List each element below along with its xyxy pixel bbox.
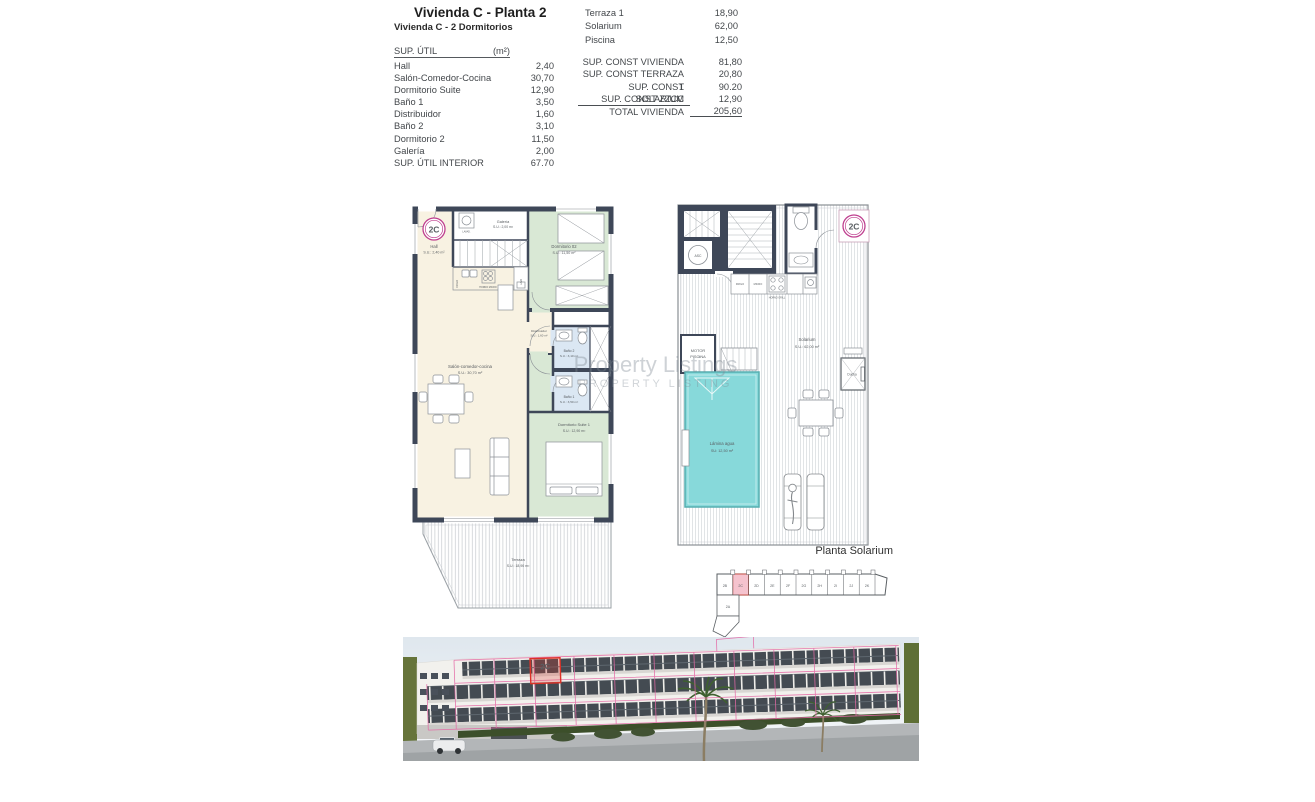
row-label: SUP. ÚTIL INTERIOR xyxy=(394,157,484,169)
table-row: Galería2,00 xyxy=(394,145,554,157)
table-row: Baño 13,50 xyxy=(394,96,554,108)
key-unit-label: 2I xyxy=(834,584,837,588)
table-row: Distribuidor1,60 xyxy=(394,108,554,120)
table-row: SUP. CONST VIVIENDA81,80 xyxy=(578,56,742,68)
washer-label: LAVAD. xyxy=(462,231,470,234)
bano1-label: Baño 1 xyxy=(564,395,575,399)
key-unit-label-highlight: 2C xyxy=(738,584,743,588)
const-area-table: SUP. CONST VIVIENDA81,80 SUP. CONST TERR… xyxy=(578,56,742,117)
motor-piscina-room: MOTOR PISCINA xyxy=(681,335,715,373)
micro-label: MICRO xyxy=(754,282,763,286)
suite-bed xyxy=(546,442,602,496)
row-value: 2,00 xyxy=(536,145,554,157)
table-row: SUP. CONST TERRAZA 120,80 xyxy=(578,68,742,80)
key-unit-label-2a: 2A xyxy=(726,605,731,609)
motor-line2: PISCINA xyxy=(690,354,706,359)
deck-stair xyxy=(721,348,757,370)
table-row: Terraza 118,90 xyxy=(585,7,738,20)
key-unit-label: 2G xyxy=(802,584,807,588)
row-value: 20,80 xyxy=(690,68,742,80)
distribuidor-label: Distribuidor xyxy=(531,329,547,333)
elevator-label: ASC xyxy=(695,254,703,258)
bano1-area: S.U.: 3,50 m² xyxy=(560,400,578,404)
building-outline xyxy=(713,570,887,637)
row-label: Terraza 1 xyxy=(585,7,624,20)
shower: Ducha xyxy=(841,348,865,390)
row-label: Baño 1 xyxy=(394,96,423,108)
bano2-label: Baño 2 xyxy=(564,349,575,353)
page-title: Vivienda C - Planta 2 xyxy=(414,5,547,20)
row-label: Baño 2 xyxy=(394,120,423,132)
table-row: Piscina12,50 xyxy=(585,34,738,47)
row-value: 12,50 xyxy=(715,34,738,47)
table-row: Dormitorio Suite12,90 xyxy=(394,84,554,96)
exterior-area-table: Terraza 118,90 Solarium62,00 Piscina12,5… xyxy=(585,7,738,47)
row-value: 1,60 xyxy=(536,108,554,120)
row-value: 62,00 xyxy=(715,20,738,33)
util-header-label: SUP. ÚTIL xyxy=(394,46,437,56)
salon-label: Salón-comedor-cocina xyxy=(448,364,492,369)
highlighted-unit-2c: 2C xyxy=(530,658,561,684)
unit-badge-label: 2C xyxy=(849,221,860,231)
table-row: Salón-Comedor-Cocina30,70 xyxy=(394,72,554,84)
row-label: SUP. CONST TERRAZA 1 xyxy=(578,68,690,80)
key-plan: 2B 2C 2D 2E 2F 2G 2H 2I 2J 2K 2A xyxy=(703,558,898,640)
key-unit-label: 2E xyxy=(770,584,775,588)
row-value: 12,90 xyxy=(690,93,742,105)
washer xyxy=(459,213,474,228)
row-label: Dormitorio Suite xyxy=(394,84,461,96)
bedroom2-beds xyxy=(556,214,608,305)
row-value: 2,40 xyxy=(536,60,554,72)
suite-area: S.U.: 12,90 m² xyxy=(563,429,586,433)
table-row: SUP. CONST ZZCC12,90 xyxy=(578,93,742,105)
pool: Lámina agua SU: 12,50 m² xyxy=(682,372,759,507)
row-label: SUP. CONST ZZCC xyxy=(578,93,690,105)
hall-area: S.U.: 2,40 m² xyxy=(423,251,445,255)
lava-label: LAVA xyxy=(520,279,523,285)
pool-label: Lámina agua xyxy=(710,441,735,446)
row-label: Distribuidor xyxy=(394,108,441,120)
key-plan-title: Planta Solarium xyxy=(768,545,893,557)
key-unit-label: 2D xyxy=(754,584,759,588)
table-row: Baño 23,10 xyxy=(394,120,554,132)
key-unit-label: 2B xyxy=(723,584,728,588)
unit-badge-2c: 2C xyxy=(839,210,869,242)
row-value: 12,90 xyxy=(531,84,554,96)
tv-cabinet xyxy=(455,449,470,478)
ducha-label: Ducha xyxy=(847,373,856,377)
row-value: 30,70 xyxy=(531,72,554,84)
table-row: SUP. ÚTIL INTERIOR67.70 xyxy=(394,157,554,169)
solarium-area: S.U.: 62,00 m² xyxy=(795,345,820,349)
row-label: Hall xyxy=(394,60,410,72)
horno-label: HORNO MICRO xyxy=(479,286,497,289)
row-value: 81,80 xyxy=(690,56,742,68)
row-value: 3,50 xyxy=(536,96,554,108)
total-label: TOTAL VIVIENDA xyxy=(578,105,690,117)
bano2-area: S.U.: 3,10 m² xyxy=(560,354,578,358)
row-label: Piscina xyxy=(585,34,615,47)
hedge-right xyxy=(904,643,919,723)
row-label: Galería xyxy=(394,145,425,157)
util-area-table: SUP. ÚTIL (m²) Hall2,40 Salón-Comedor-Co… xyxy=(394,46,554,169)
row-value: 3,10 xyxy=(536,120,554,132)
row-value: 67.70 xyxy=(531,157,554,169)
unit-badge-label: 2C xyxy=(429,224,440,234)
floor-plan-level2: 2C Hall S.U.: 2,40 m² Galería S.U.: 2,00… xyxy=(406,204,618,620)
dorm2-area: S.U.: 11,50 m² xyxy=(553,251,577,255)
row-label: Solarium xyxy=(585,20,622,33)
table-row: Solarium62,00 xyxy=(585,20,738,33)
dorm2-label: Dormitorio 02 xyxy=(551,244,577,249)
suite-label: Dormitorio Suite 1 xyxy=(558,422,591,427)
motor-line1: MOTOR xyxy=(691,348,706,353)
sofa xyxy=(490,438,509,495)
salon-area: S.U.: 30,70 m² xyxy=(458,371,483,375)
terraza-label: Terraza xyxy=(511,557,525,562)
highlighted-unit-label: 2C xyxy=(540,662,551,671)
row-value: 90.20 xyxy=(690,81,742,93)
util-table-header: SUP. ÚTIL (m²) xyxy=(394,46,510,58)
hall-label: Hall xyxy=(430,244,437,249)
table-row: Hall2,40 xyxy=(394,60,554,72)
building-render: 2C xyxy=(403,637,919,761)
pool-area: SU: 12,50 m² xyxy=(711,449,734,453)
galeria-area: S.U.: 2,00 m² xyxy=(493,225,514,229)
key-unit-label: 2H xyxy=(817,584,822,588)
row-label: SUP. CONST VIVIENDA xyxy=(578,56,690,68)
page-subtitle: Vivienda C - 2 Dormitorios xyxy=(394,22,513,33)
util-header-unit: (m²) xyxy=(493,46,510,56)
frigo-label: FRIGO xyxy=(736,282,744,286)
unit-badge-2c: 2C xyxy=(423,218,445,240)
galeria-label: Galería xyxy=(497,220,510,224)
left-facade-windows xyxy=(420,673,449,711)
table-row: SUP. CONST SOLARIUM90.20 xyxy=(578,81,742,93)
row-value: 11,50 xyxy=(531,133,554,145)
total-row: TOTAL VIVIENDA205,60 xyxy=(578,105,742,117)
terraza-area: S.U.: 18,90 m² xyxy=(507,564,530,568)
total-value: 205,60 xyxy=(690,105,742,117)
key-unit-label: 2K xyxy=(865,584,870,588)
row-value: 18,90 xyxy=(715,7,738,20)
row-label: SUP. CONST SOLARIUM xyxy=(578,81,690,93)
solarium-label: Solarium xyxy=(799,337,816,342)
frigo-label: FRIGO xyxy=(456,280,459,288)
horno-label: HORNO GRILL xyxy=(769,297,786,300)
row-label: Dormitorio 2 xyxy=(394,133,445,145)
row-label: Salón-Comedor-Cocina xyxy=(394,72,491,84)
table-row: Dormitorio 211,50 xyxy=(394,133,554,145)
key-unit-label: 2J xyxy=(849,584,853,588)
solarium-plan: ASC 2C FRIGO xyxy=(673,202,873,550)
plan-sheet-page: Vivienda C - Planta 2 Vivienda C - 2 Dor… xyxy=(0,0,1315,802)
distribuidor-area: S.U.: 1,60 m² xyxy=(530,334,547,338)
